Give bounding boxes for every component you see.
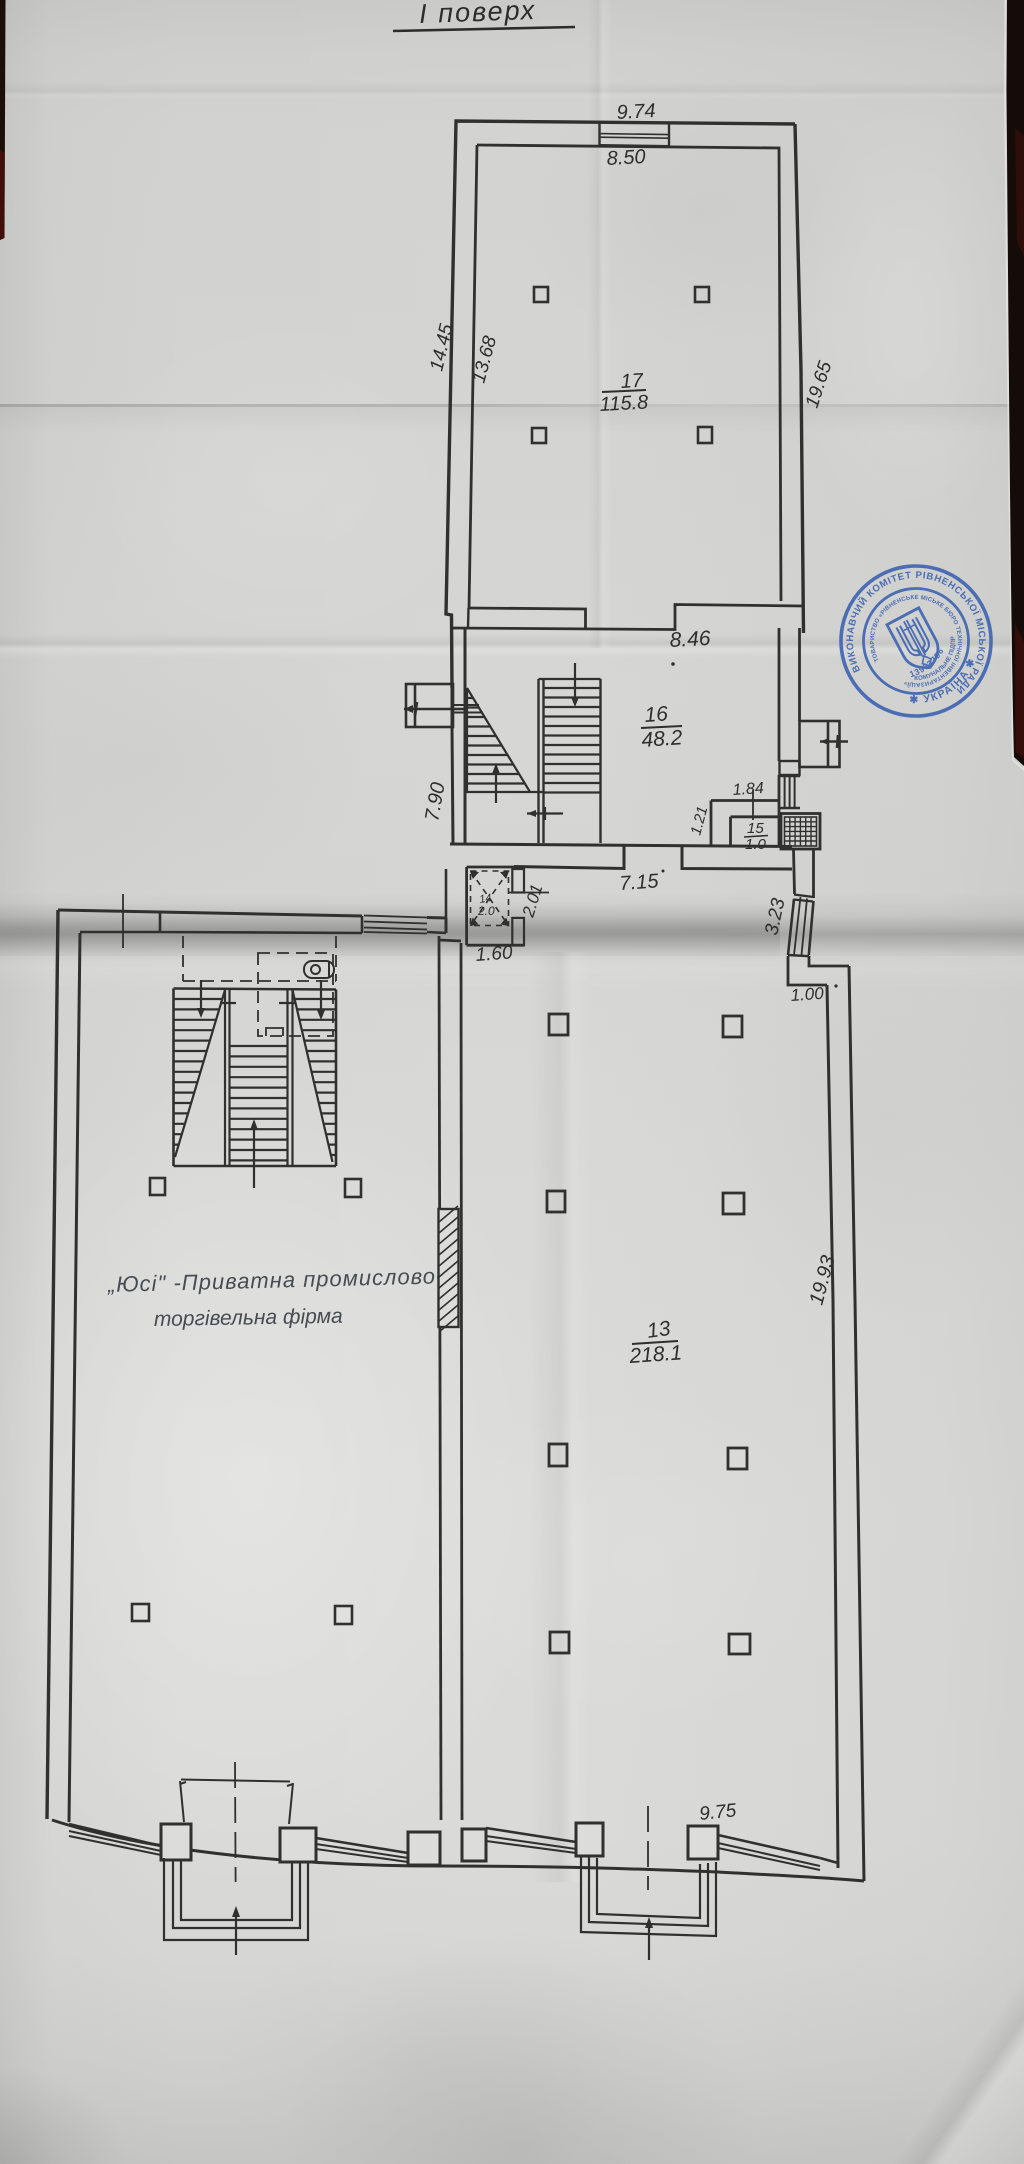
- svg-text:7.90: 7.90: [421, 781, 449, 823]
- svg-text:19.65: 19.65: [802, 358, 837, 410]
- svg-text:48.2: 48.2: [641, 726, 684, 752]
- svg-text:7.15: 7.15: [619, 870, 660, 895]
- svg-text:1.60: 1.60: [475, 942, 514, 966]
- svg-text:3.23: 3.23: [761, 896, 789, 937]
- svg-text:9.74: 9.74: [616, 100, 656, 124]
- svg-text:16: 16: [644, 702, 669, 727]
- svg-text:торгівельна фірма: торгівельна фірма: [154, 1305, 343, 1331]
- svg-text:„Юсі" -Приватна промислово-: „Юсі" -Приватна промислово-: [106, 1263, 444, 1297]
- svg-text:13: 13: [645, 1317, 672, 1343]
- svg-text:І поверх: І поверх: [419, 0, 537, 29]
- svg-text:8.46: 8.46: [669, 627, 711, 652]
- svg-text:8.50: 8.50: [606, 146, 646, 170]
- svg-text:115.8: 115.8: [599, 391, 649, 416]
- svg-text:1.21: 1.21: [687, 804, 711, 837]
- svg-text:1.00: 1.00: [790, 984, 825, 1005]
- svg-text:218.1: 218.1: [628, 1341, 683, 1368]
- svg-text:9.75: 9.75: [698, 1800, 737, 1825]
- svg-text:19.93: 19.93: [806, 1253, 840, 1307]
- svg-text:2.0: 2.0: [477, 904, 495, 918]
- svg-text:1.84: 1.84: [732, 780, 764, 799]
- svg-text:1.0: 1.0: [745, 836, 767, 853]
- svg-text:ВИКОНАВЧИЙ КОМІТЕТ РІВНЕНСЬКОЇ: ВИКОНАВЧИЙ КОМІТЕТ РІВНЕНСЬКОЇ МІСЬКОЇ Р…: [820, 545, 1012, 736]
- svg-text:2.01: 2.01: [518, 882, 546, 920]
- svg-text:15: 15: [747, 820, 764, 837]
